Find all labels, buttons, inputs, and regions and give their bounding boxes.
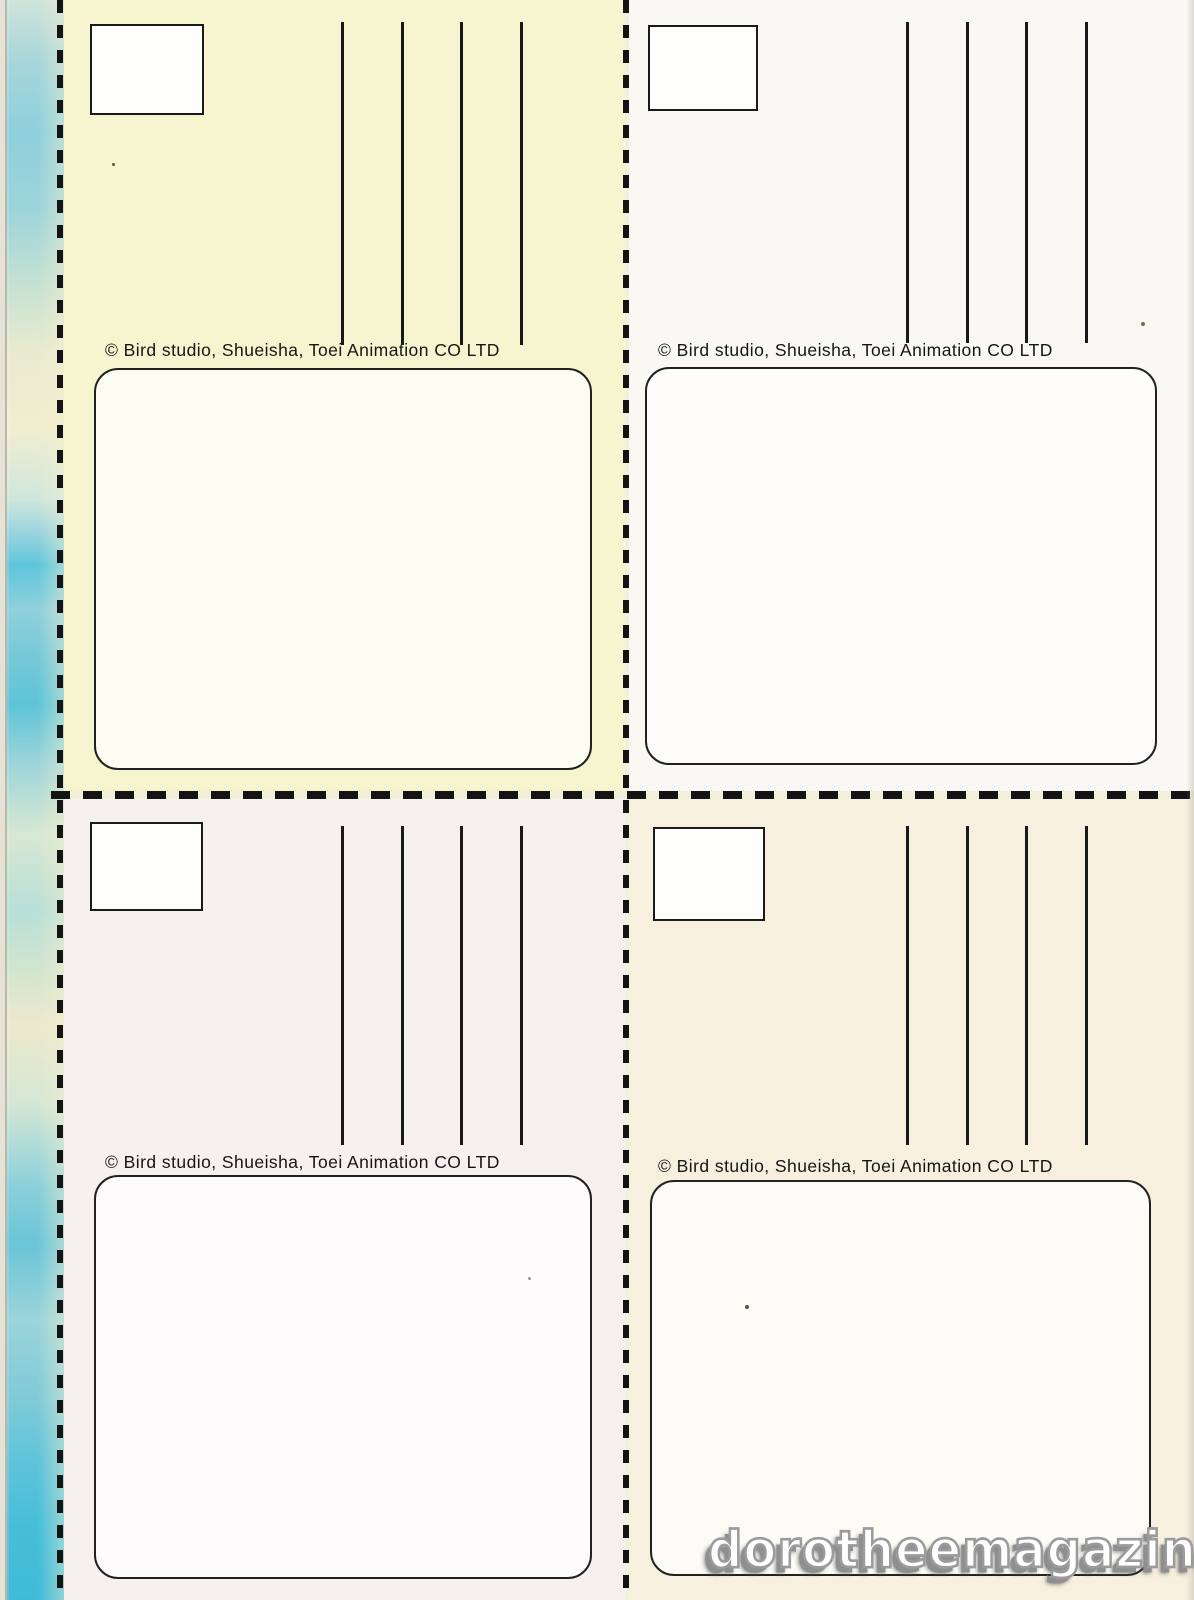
- cut-line-vertical-middle: [623, 0, 629, 1600]
- message-box: [650, 1180, 1151, 1576]
- address-line: [966, 22, 969, 343]
- postcard-back-bottom-right: © Bird studio, Shueisha, Toei Animation …: [629, 799, 1194, 1600]
- address-line: [341, 22, 344, 345]
- copyright-text: © Bird studio, Shueisha, Toei Animation …: [658, 1156, 1053, 1177]
- address-line: [1085, 826, 1088, 1145]
- address-line: [1025, 826, 1028, 1145]
- cut-line-vertical-left: [57, 0, 63, 1600]
- address-line: [1025, 22, 1028, 343]
- postcard-back-bottom-left: © Bird studio, Shueisha, Toei Animation …: [64, 799, 625, 1600]
- binding-strip-watercolor: [0, 0, 64, 1600]
- stamp-box: [653, 827, 765, 921]
- stamp-box: [648, 25, 758, 111]
- copyright-text: © Bird studio, Shueisha, Toei Animation …: [658, 340, 1053, 361]
- watermark-logo: dorotheemagazine.fr: [708, 1520, 1194, 1579]
- address-line: [906, 22, 909, 343]
- copyright-text: © Bird studio, Shueisha, Toei Animation …: [105, 340, 500, 361]
- postcard-back-top-right: © Bird studio, Shueisha, Toei Animation …: [629, 0, 1194, 791]
- address-line: [460, 826, 463, 1145]
- dust-speck: [1141, 322, 1145, 326]
- address-line: [401, 826, 404, 1145]
- address-line: [966, 826, 969, 1145]
- message-box: [645, 367, 1157, 765]
- stamp-box: [90, 822, 203, 911]
- copyright-text: © Bird studio, Shueisha, Toei Animation …: [105, 1152, 500, 1173]
- stamp-box: [90, 24, 204, 115]
- message-box: [94, 1175, 592, 1579]
- dust-speck: [112, 163, 115, 166]
- address-line: [520, 22, 523, 345]
- message-box: [94, 368, 592, 770]
- scanned-magazine-postcard-page: © Bird studio, Shueisha, Toei Animation …: [0, 0, 1194, 1600]
- address-line: [520, 826, 523, 1145]
- address-line: [401, 22, 404, 345]
- address-line: [906, 826, 909, 1145]
- cut-line-horizontal: [51, 791, 1194, 799]
- dust-speck: [528, 1277, 531, 1280]
- address-line: [341, 826, 344, 1145]
- address-line: [460, 22, 463, 345]
- postcard-back-top-left: © Bird studio, Shueisha, Toei Animation …: [64, 0, 625, 791]
- page-edge-shadow: [1186, 0, 1194, 1600]
- address-line: [1085, 22, 1088, 343]
- dust-speck: [745, 1305, 749, 1309]
